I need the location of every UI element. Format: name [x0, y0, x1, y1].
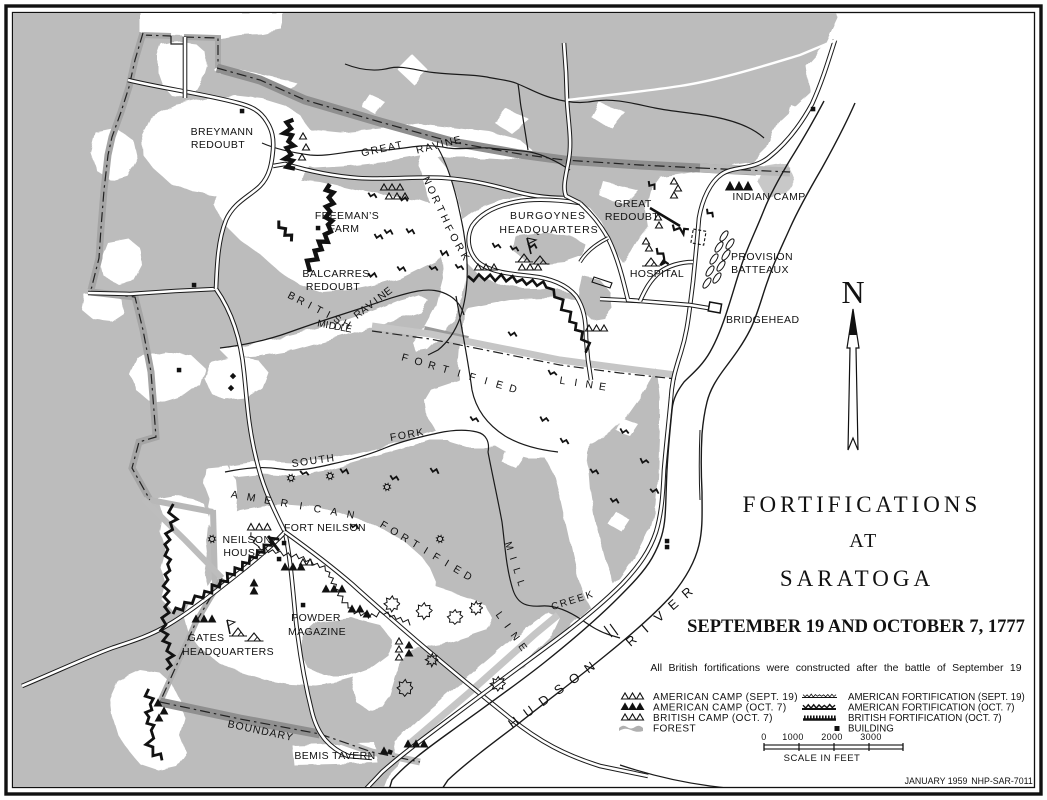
svg-text:AMERICAN CAMP (OCT. 7): AMERICAN CAMP (OCT. 7): [653, 703, 787, 714]
svg-text:GREAT: GREAT: [614, 198, 652, 210]
svg-text:FORT NEILSON: FORT NEILSON: [284, 522, 366, 534]
svg-text:AMERICAN CAMP (SEPT. 19): AMERICAN CAMP (SEPT. 19): [653, 692, 798, 703]
svg-text:FORTIFICATIONS: FORTIFICATIONS: [743, 492, 982, 517]
svg-text:POWDER: POWDER: [291, 612, 341, 624]
svg-text:REDOUBT: REDOUBT: [191, 139, 245, 151]
svg-text:SCALE IN FEET: SCALE IN FEET: [784, 753, 861, 764]
svg-text:BALCARRES: BALCARRES: [302, 268, 369, 280]
svg-text:SARATOGA: SARATOGA: [780, 566, 934, 591]
svg-text:N: N: [841, 274, 864, 310]
svg-text:MAGAZINE: MAGAZINE: [288, 626, 346, 638]
svg-text:JANUARY 1959: JANUARY 1959: [905, 776, 968, 786]
svg-text:FOREST: FOREST: [653, 724, 696, 735]
svg-text:BRITISH FORTIFICATION (OCT. 7): BRITISH FORTIFICATION (OCT. 7): [848, 713, 1002, 724]
svg-text:FREEMAN’S: FREEMAN’S: [315, 210, 379, 222]
svg-text:REDOUBT: REDOUBT: [605, 211, 659, 223]
svg-text:AMERICAN FORTIFICATION (OCT. 7: AMERICAN FORTIFICATION (OCT. 7): [848, 703, 1014, 714]
svg-text:0: 0: [761, 732, 766, 742]
svg-text:All British fortifications wer: All British fortifications were construc…: [650, 662, 1021, 674]
svg-text:BREYMANN: BREYMANN: [191, 126, 254, 138]
svg-text:FARM: FARM: [329, 223, 360, 235]
svg-text:BATTEAUX: BATTEAUX: [731, 264, 789, 276]
svg-text:HOSPITAL: HOSPITAL: [630, 268, 684, 280]
svg-text:NEILSON: NEILSON: [223, 534, 272, 546]
svg-text:AMERICAN FORTIFICATION (SEPT.: AMERICAN FORTIFICATION (SEPT. 19): [848, 692, 1025, 703]
svg-text:1000: 1000: [782, 732, 804, 742]
svg-text:HEADQUARTERS: HEADQUARTERS: [182, 646, 274, 658]
svg-text:2000: 2000: [821, 732, 843, 742]
svg-text:GATES: GATES: [188, 632, 225, 644]
svg-text:AT: AT: [849, 530, 878, 552]
svg-text:BURGOYNES: BURGOYNES: [510, 210, 586, 222]
svg-text:NHP-SAR-7011: NHP-SAR-7011: [971, 776, 1033, 786]
svg-text:SEPTEMBER 19 AND OCTOBER 7, 17: SEPTEMBER 19 AND OCTOBER 7, 1777: [687, 617, 1025, 637]
svg-text:INDIAN CAMP: INDIAN CAMP: [732, 191, 805, 203]
svg-text:HOUSE: HOUSE: [223, 547, 262, 559]
svg-text:REDOUBT: REDOUBT: [306, 281, 360, 293]
svg-text:HEADQUARTERS: HEADQUARTERS: [499, 224, 598, 236]
svg-text:BEMIS TAVERN: BEMIS TAVERN: [294, 750, 375, 762]
svg-text:PROVISION: PROVISION: [731, 251, 793, 263]
svg-text:3000: 3000: [860, 732, 882, 742]
svg-text:BRITISH CAMP (OCT. 7): BRITISH CAMP (OCT. 7): [653, 713, 773, 724]
svg-text:BRIDGEHEAD: BRIDGEHEAD: [726, 314, 799, 326]
